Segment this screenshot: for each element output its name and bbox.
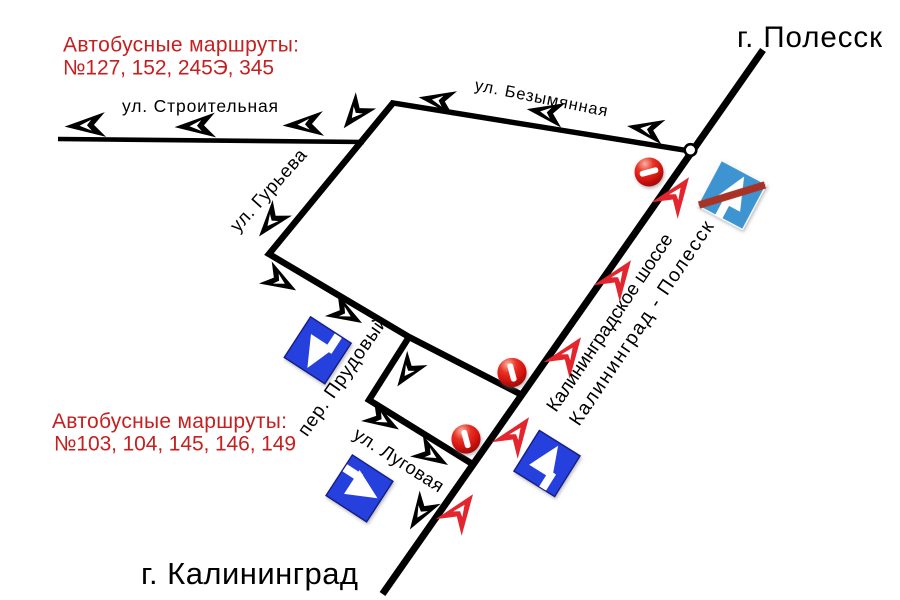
- svg-text:ул. Строительная: ул. Строительная: [122, 96, 278, 116]
- svg-text:г. Полесск: г. Полесск: [737, 21, 883, 54]
- svg-text:№103, 104, 145, 146, 149: №103, 104, 145, 146, 149: [54, 433, 296, 456]
- svg-text:№127, 152, 245Э, 345: №127, 152, 245Э, 345: [63, 57, 274, 80]
- svg-text:Автобусные маршруты:: Автобусные маршруты:: [52, 410, 287, 433]
- svg-text:Автобусные маршруты:: Автобусные маршруты:: [63, 34, 299, 57]
- svg-text:г. Калининград: г. Калининград: [141, 556, 358, 591]
